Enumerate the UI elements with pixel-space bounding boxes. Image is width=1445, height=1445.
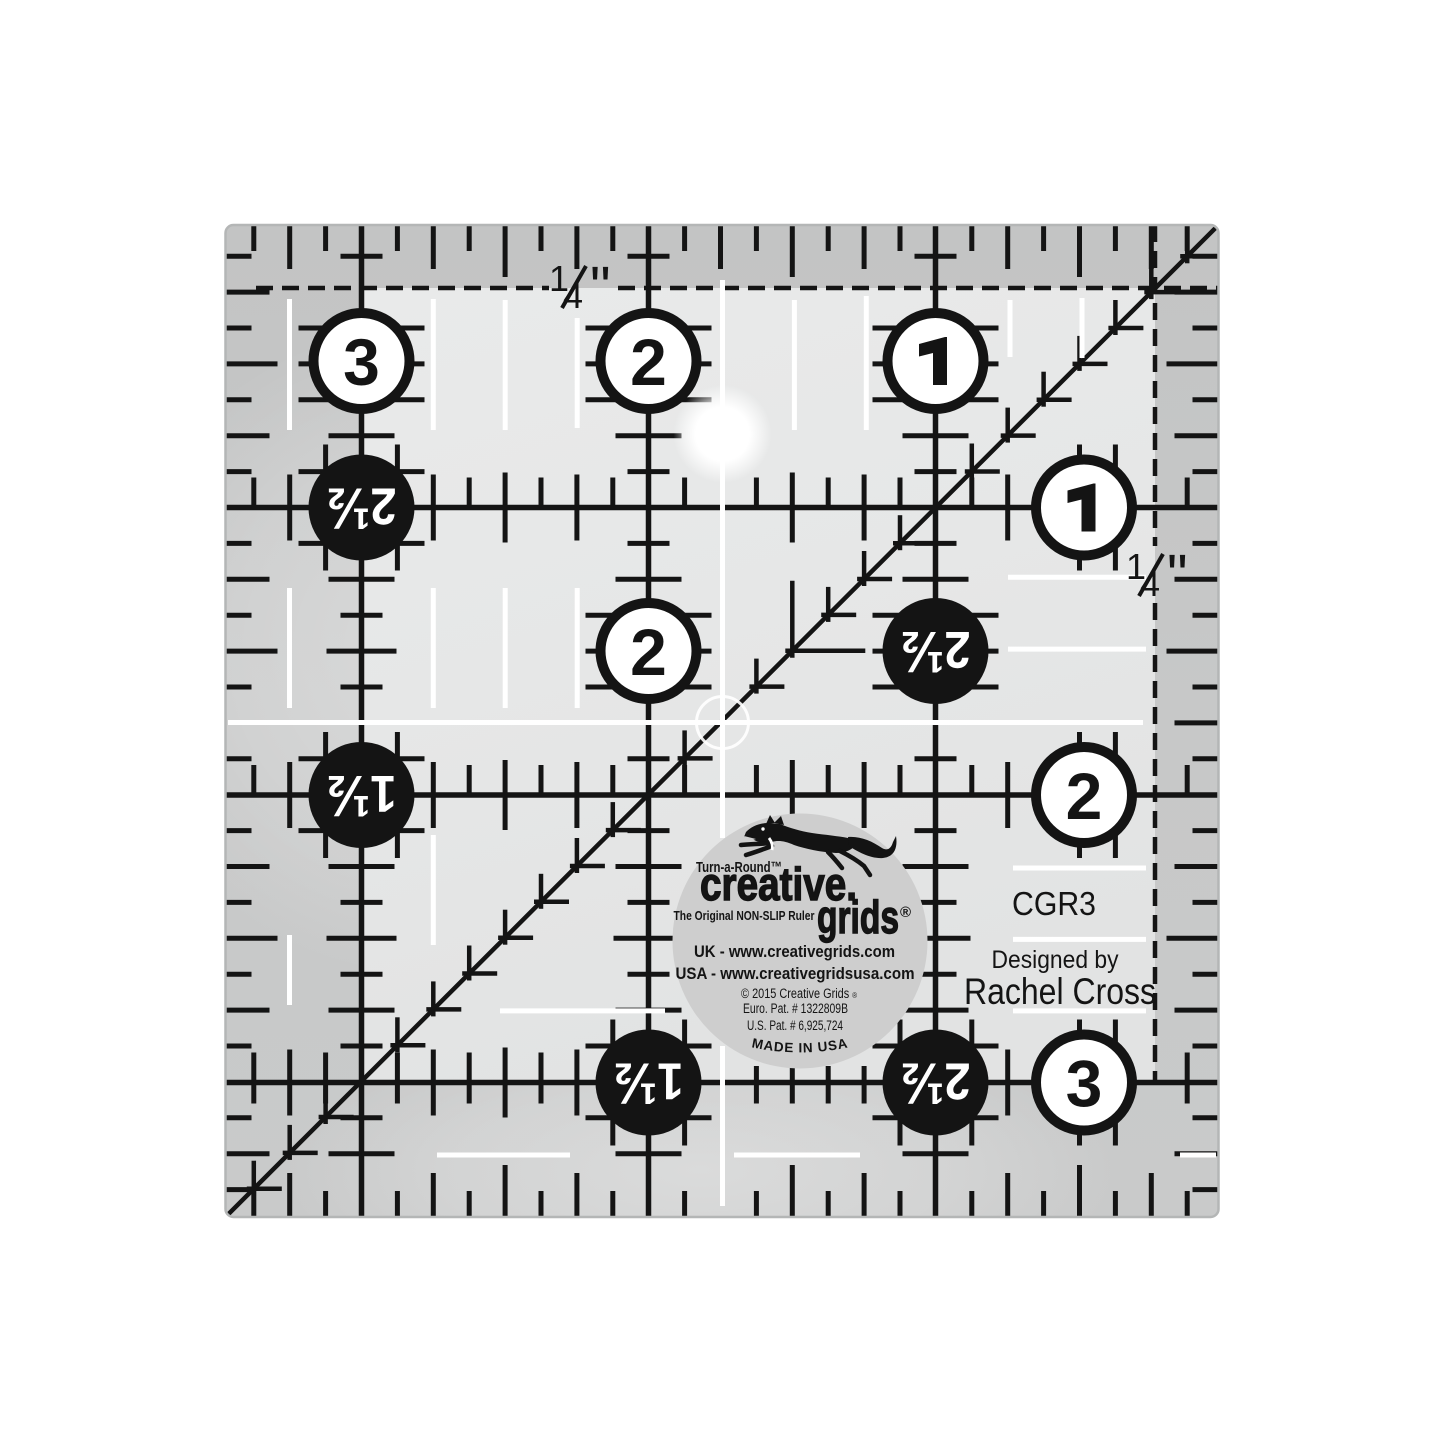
svg-text:1½: 1½: [327, 763, 397, 828]
svg-text:U.S. Pat. # 6,925,724: U.S. Pat. # 6,925,724: [747, 1018, 843, 1033]
svg-text:®: ®: [900, 904, 911, 921]
svg-text:": ": [590, 255, 611, 320]
svg-text:3: 3: [343, 325, 380, 399]
svg-text:3: 3: [1066, 1047, 1103, 1121]
svg-text:4: 4: [563, 275, 583, 316]
svg-text:2½: 2½: [901, 619, 971, 684]
svg-text:UK - www.creativegrids.com: UK - www.creativegrids.com: [694, 942, 895, 961]
svg-text:grids: grids: [817, 891, 899, 943]
svg-text:2: 2: [630, 325, 667, 399]
svg-text:2½: 2½: [327, 476, 397, 541]
svg-text:4: 4: [1140, 563, 1160, 604]
svg-text:USA - www.creativegridsusa.com: USA - www.creativegridsusa.com: [676, 964, 915, 983]
svg-text:2: 2: [630, 615, 667, 689]
svg-text:Designed by: Designed by: [992, 946, 1119, 974]
svg-text:2½: 2½: [901, 1051, 971, 1116]
svg-text:2: 2: [1066, 759, 1103, 833]
svg-text:CGR3: CGR3: [1012, 885, 1096, 922]
svg-text:": ": [1167, 543, 1188, 608]
svg-text:© 2015 Creative Grids ®: © 2015 Creative Grids ®: [741, 986, 857, 1001]
svg-text:The Original NON-SLIP Ruler: The Original NON-SLIP Ruler: [674, 909, 815, 923]
svg-text:1½: 1½: [614, 1051, 684, 1116]
svg-text:Rachel Cross: Rachel Cross: [964, 971, 1156, 1012]
svg-text:Euro. Pat. # 1322809B: Euro. Pat. # 1322809B: [743, 1001, 848, 1016]
